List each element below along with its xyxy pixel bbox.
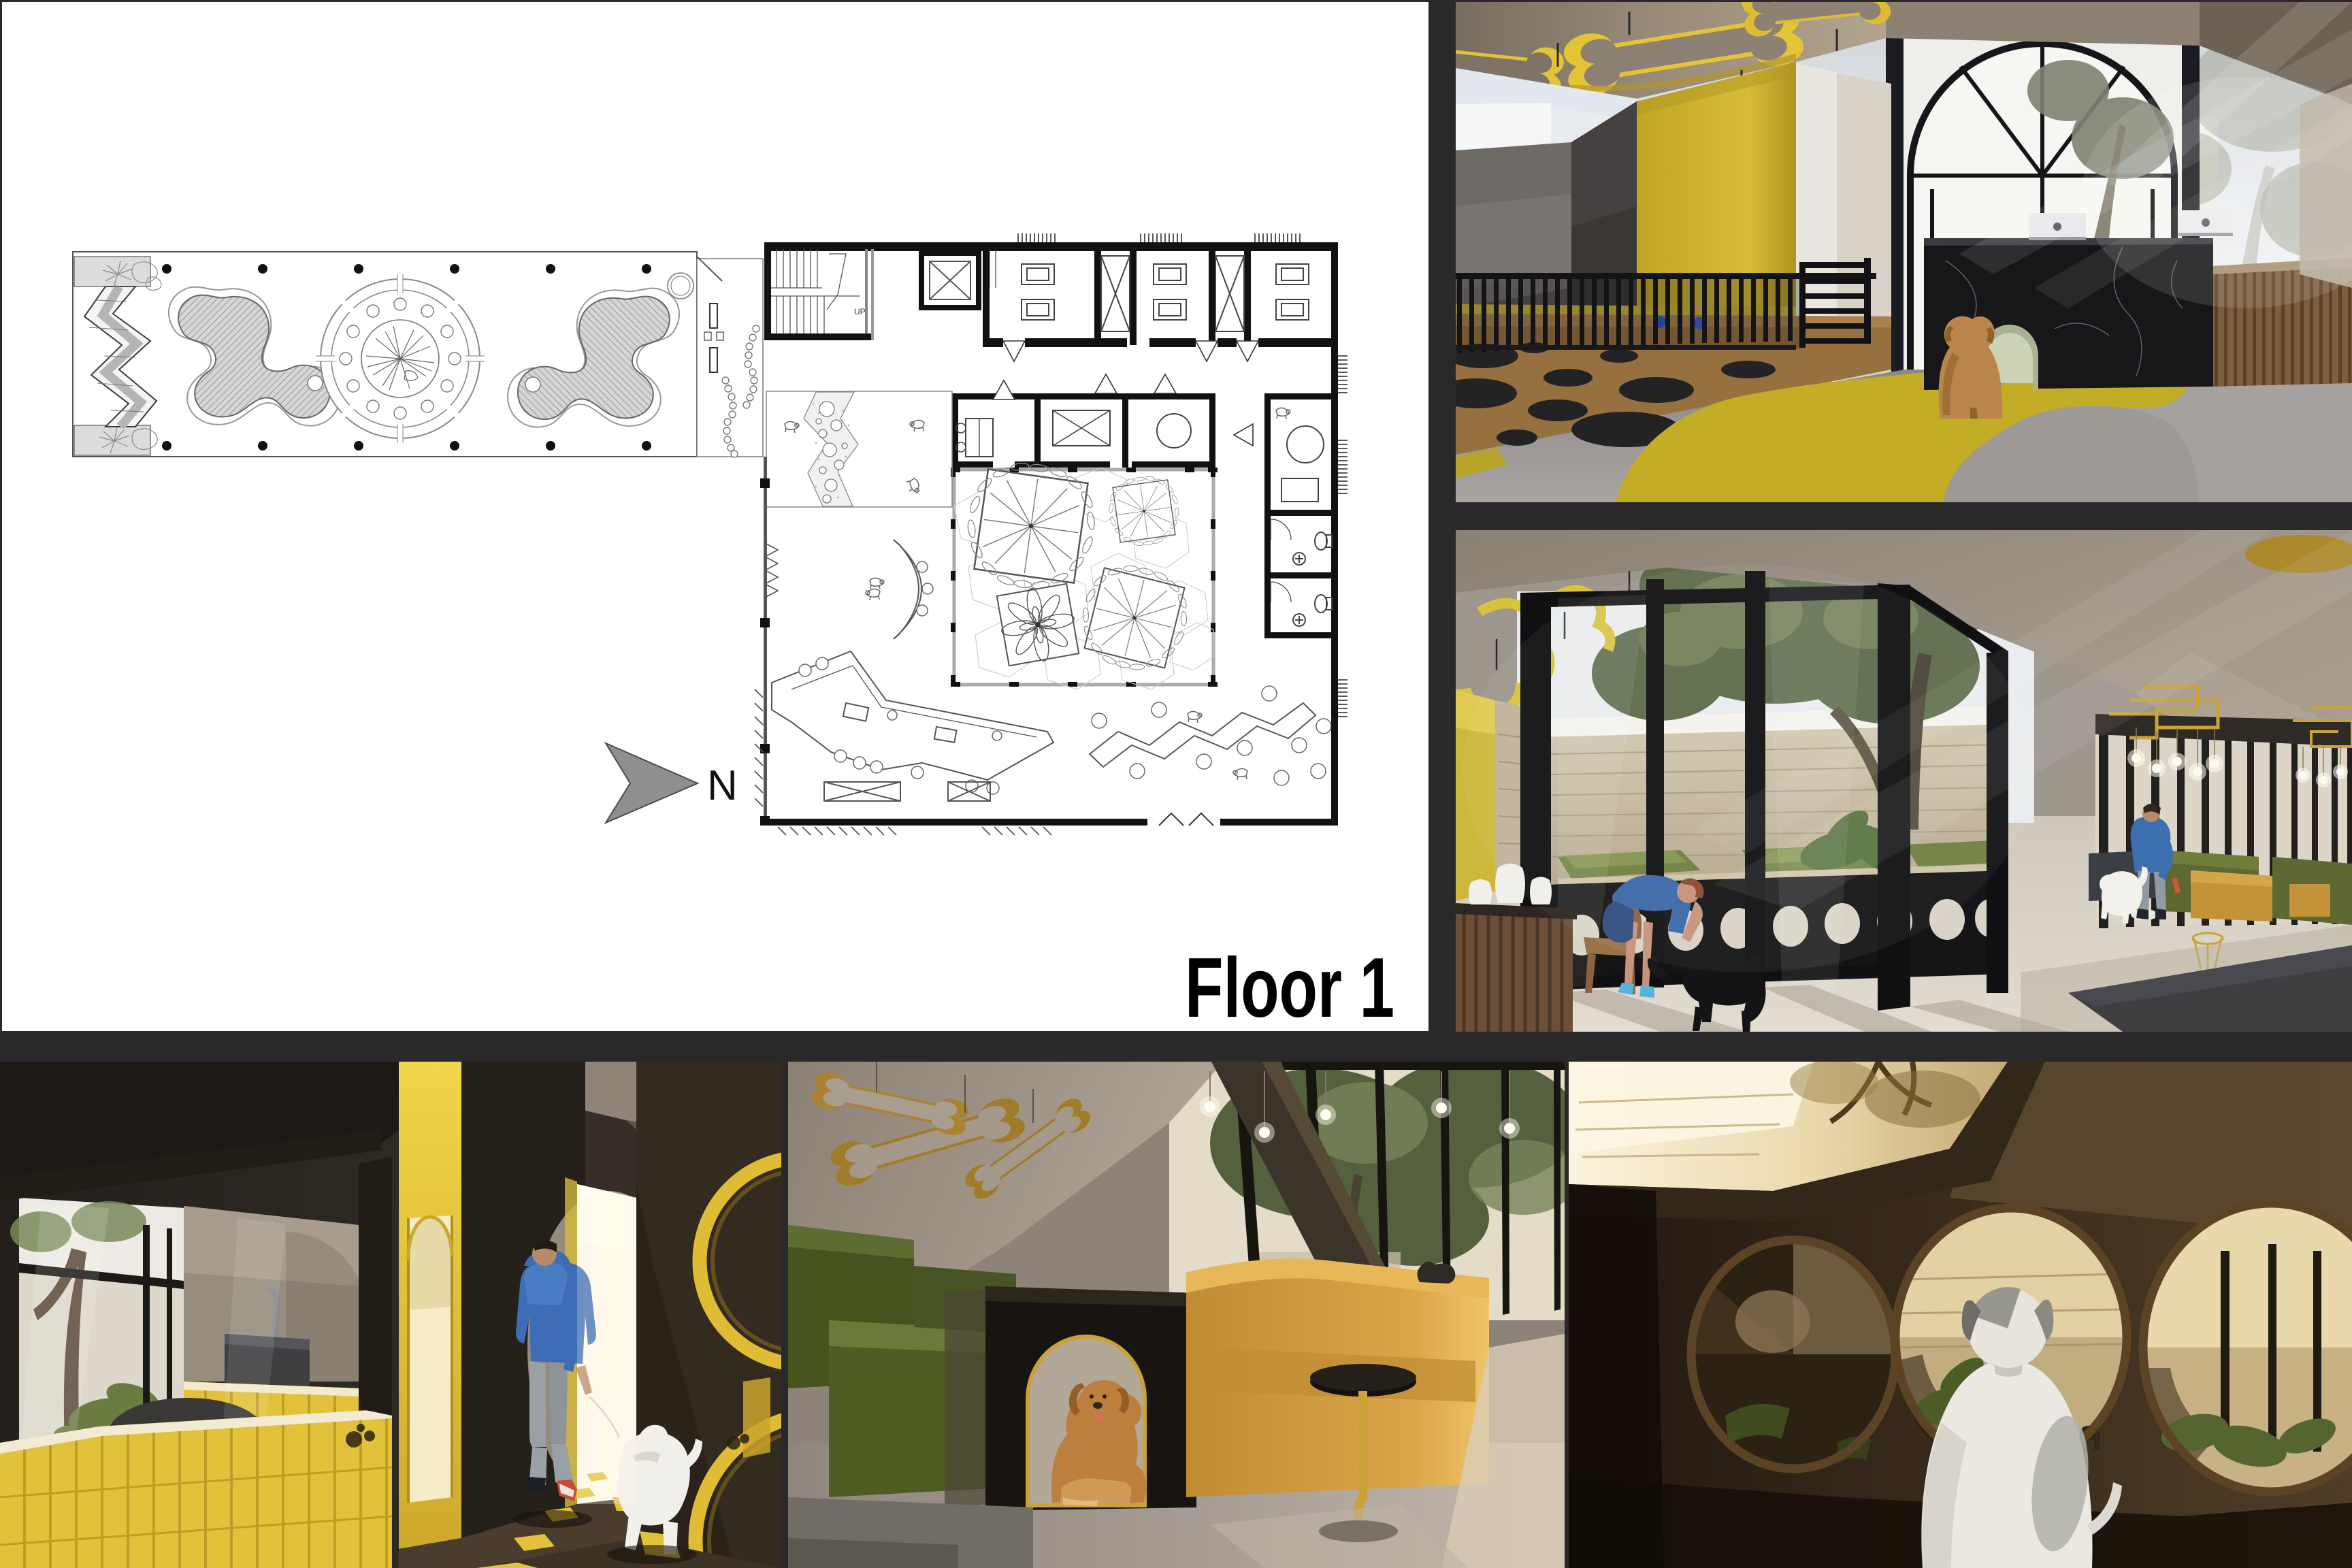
svg-text:N: N — [707, 762, 738, 809]
svg-text:UP: UP — [854, 307, 866, 316]
svg-text:Floor 1: Floor 1 — [1185, 941, 1394, 1031]
